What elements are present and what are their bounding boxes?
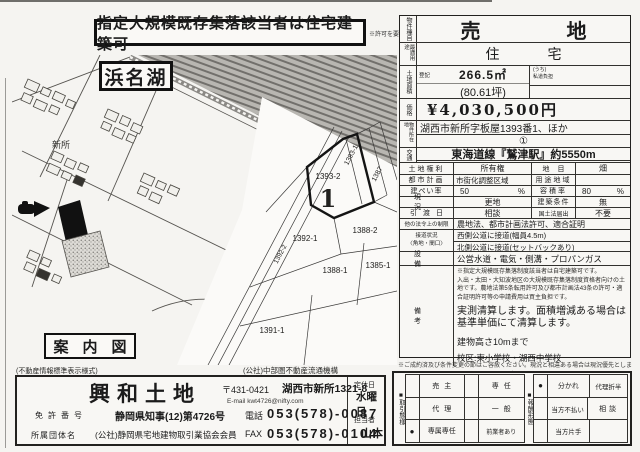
deal-exclusive-option: 専属専任 <box>420 420 466 442</box>
status-value: 更地 <box>454 197 532 207</box>
fee-wakare-checkbox: ● <box>534 375 548 397</box>
location-label: 物件所在地 <box>400 121 417 147</box>
zone-value <box>576 175 630 185</box>
property-detail-panel: 物件種目 売地 最適用途 住宅 土地面積 登記 266.5㎡ (80.61坪) <box>399 15 631 358</box>
flyer-page: 指定大規模既存集落該当者は住宅建築可 ※許可を要す <box>0 0 640 452</box>
access-label: 交通 <box>400 148 417 162</box>
bcr-value: 50% <box>454 186 532 196</box>
fee-fubarai-option: 当方不払い <box>548 398 588 420</box>
parcel-label-1388-2: 1388-2 <box>353 226 378 235</box>
row-status: 現況 更地 建築条件 無 <box>400 197 630 208</box>
access-value-2-empty <box>417 161 630 162</box>
deal-prior-option: 前業者あり <box>479 420 524 442</box>
row-land-area: 土地面積 登記 266.5㎡ (80.61坪) (うち) 私道負担 <box>400 66 630 99</box>
landact-value: 不要 <box>576 208 630 218</box>
price-label: 価格 <box>400 99 417 120</box>
license-value: 静岡県知事(12)第4726号 <box>115 408 225 423</box>
scan-artifact-left <box>5 78 6 448</box>
row-utilities: 設備 公営水道・電気・側溝・プロパンガス <box>400 252 630 266</box>
row-property-type: 物件種目 売地 <box>400 16 630 43</box>
fee-type-label: ■報酬形態 <box>526 392 533 425</box>
property-type-value: 売地 <box>417 16 630 42</box>
deal-general-option: 一般 <box>479 398 524 420</box>
use-label: 最適用途 <box>400 43 417 65</box>
cityplan-value: 市街化調整区域 <box>454 175 532 185</box>
status-label: 現況 <box>400 197 454 207</box>
fee-fubarai-checkbox <box>534 398 548 420</box>
row-laws: 他の法令上の制限 農地法、都市計画法許可、適合証明 <box>400 219 630 230</box>
rights-value: 所有権 <box>454 163 532 174</box>
member-value: (公社)静岡県宅地建物取引業協会会員 <box>95 429 237 441</box>
fee-wakare-option: 分かれ <box>548 375 590 397</box>
utilities-value: 公営水道・電気・側溝・プロパンガス <box>454 252 630 265</box>
private-road-note: (うち) 私道負担 <box>530 66 630 86</box>
far-value: 80% <box>576 186 630 196</box>
chimoku-label: 地目 <box>532 163 576 174</box>
location-value: 湖西市新所字板屋1393番1、ほか <box>417 121 630 135</box>
map-caption: 案内図 <box>53 336 140 357</box>
staff-value: 山本 <box>361 425 383 441</box>
pointing-hand-icon <box>18 201 50 217</box>
district-label: 新所 <box>52 139 70 150</box>
road-access-value-1: 西側公道に接道(幅員4.5m) <box>454 230 630 242</box>
rights-label: 土地権利 <box>400 163 454 174</box>
zone-label: 用途地域 <box>532 175 576 185</box>
parcel-label-main: 1393-2 <box>316 172 341 181</box>
deal-prior-checkbox <box>465 420 479 442</box>
parcel-label-1392-1: 1392-1 <box>293 234 318 243</box>
row-price: 価格 ¥4,030,500円 <box>400 99 630 121</box>
deal-agent-checkbox <box>406 398 420 420</box>
subject-parcel-number-mark: 1 <box>320 184 337 213</box>
fee-blank-option <box>590 420 627 442</box>
fee-dairiseppan-option: 代理折半 <box>590 375 627 397</box>
land-area-value: 266.5㎡ <box>437 66 529 83</box>
deal-senin-option: 専任 <box>479 375 524 397</box>
agency-postal-code: 〒431-0421 <box>222 383 269 396</box>
license-label: 免許番号 <box>35 410 87 421</box>
remarks-height-limit: 建物高さ10mまで <box>457 335 627 348</box>
row-access: 交通 東海道線『鷲津駅』約5550m <box>400 148 630 163</box>
parcel-label-1391-1: 1391-1 <box>260 326 285 335</box>
lake-name: 浜名湖 <box>104 63 167 90</box>
far-label: 容積率 <box>532 186 576 196</box>
property-type-label: 物件種目 <box>400 16 417 42</box>
access-value: 東海道線『鷲津駅』約5550m <box>417 148 630 161</box>
remarks-label: 備考 <box>400 266 454 366</box>
deal-agent-option: 代理 <box>420 398 466 420</box>
row-rights: 土地権利 所有権 地目 畑 <box>400 163 630 175</box>
registered-label: 登記 <box>417 66 437 83</box>
deal-seller-checkbox <box>406 375 420 397</box>
fee-soudan-option: 相談 <box>588 398 627 420</box>
fee-katate-option: 当方片手 <box>548 420 590 442</box>
condition-value: 無 <box>576 197 630 207</box>
row-remarks: 備考 ※指定大規模既存集落制度該当者は自宅建築可です。 入出・太田・大知波地区の… <box>400 266 630 366</box>
row-cityplan: 都市計画 市街化調整区域 用途地域 <box>400 175 630 186</box>
fee-type-table: ● 分かれ 代理折半 当方不払い 相談 当方片手 <box>533 374 628 443</box>
deal-type-table: 売主 専任 代理 一般 ● 専属専任 前業者あり <box>405 374 525 443</box>
landact-label: 国土法届出 <box>532 208 576 218</box>
tel-label: 電話 <box>245 409 263 422</box>
laws-label: 他の法令上の制限 <box>400 219 454 229</box>
utilities-label: 設備 <box>400 252 454 265</box>
land-area-tsubo: (80.61坪) <box>437 84 529 100</box>
deal-senin-checkbox <box>465 375 479 397</box>
scan-artifact-top <box>0 0 492 2</box>
deal-general-checkbox <box>465 398 479 420</box>
transaction-stamp-box: ■取引態様 売主 専任 代理 一般 ● 専属専任 前業者あり <box>392 371 632 446</box>
member-label: 所属団体名 <box>31 430 76 441</box>
handover-value: 相談 <box>454 208 532 218</box>
fax-label: FAX <box>245 429 262 439</box>
deal-type-label: ■取引態様 <box>397 392 404 425</box>
deal-exclusive-checkbox: ● <box>406 420 420 442</box>
private-road-value-empty <box>530 86 630 98</box>
lake-name-box: 浜名湖 <box>99 61 173 91</box>
staff-label: 担当者 <box>354 415 375 425</box>
remarks-main: 実測清算します。面積増減ある場合は基準単価にて清算します。 <box>457 306 627 331</box>
row-use: 最適用途 住宅 <box>400 43 630 66</box>
land-area-label: 土地面積 <box>400 66 417 98</box>
permit-banner: 指定大規模既存集落該当者は住宅建築可 <box>94 19 366 46</box>
guide-map: 新所 <box>12 55 397 365</box>
agency-name: 興和土地 <box>89 378 201 408</box>
remarks-fine-print: ※指定大規模既存集落制度該当者は自宅建築可です。 入出・太田・大知波地区の大規模… <box>457 268 627 303</box>
price-value: ¥4,030,500円 <box>417 99 630 120</box>
use-value: 住宅 <box>417 43 630 65</box>
fee-katate-checkbox <box>534 420 548 442</box>
handover-label: 引渡日 <box>400 208 454 218</box>
chimoku-value: 畑 <box>576 163 630 174</box>
row-location: 物件所在地 湖西市新所字板屋1393番1、ほか ① <box>400 121 630 148</box>
agency-email: E-mail kwt4726@nifty.com <box>227 398 304 405</box>
parcel-label-1388-1: 1388-1 <box>323 266 348 275</box>
parcel-label-1385-1: 1385-1 <box>366 261 391 270</box>
deal-seller-option: 売主 <box>420 375 466 397</box>
cityplan-label: 都市計画 <box>400 175 454 185</box>
permit-banner-text: 指定大規模既存集落該当者は住宅建築可 <box>97 12 363 54</box>
condition-label: 建築条件 <box>532 197 576 207</box>
laws-value: 農地法、都市計画法許可、適合証明 <box>454 219 630 229</box>
map-caption-box: 案内図 <box>44 333 136 359</box>
row-handover: 引渡日 相談 国土法届出 不要 <box>400 208 630 219</box>
agency-info-box: 興和土地 〒431-0421 湖西市新所1321-8 E-mail kwt472… <box>15 375 386 446</box>
